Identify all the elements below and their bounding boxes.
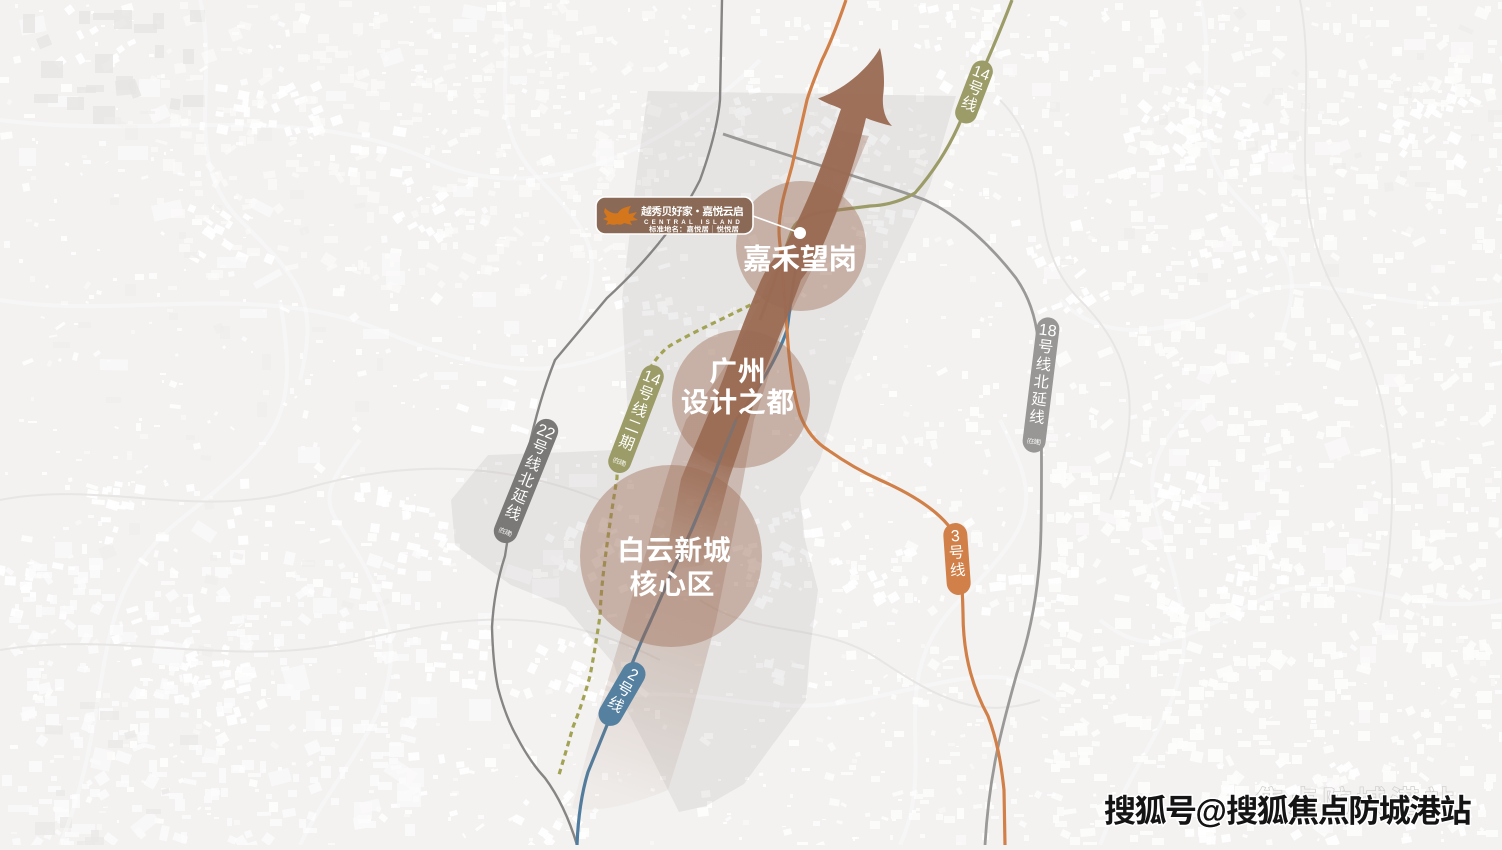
svg-text:@: @ [1196,793,1227,829]
svg-text:3: 3 [950,528,960,546]
svg-text:CENTRAL ISLAND: CENTRAL ISLAND [644,219,743,226]
svg-text:18: 18 [1038,321,1058,340]
